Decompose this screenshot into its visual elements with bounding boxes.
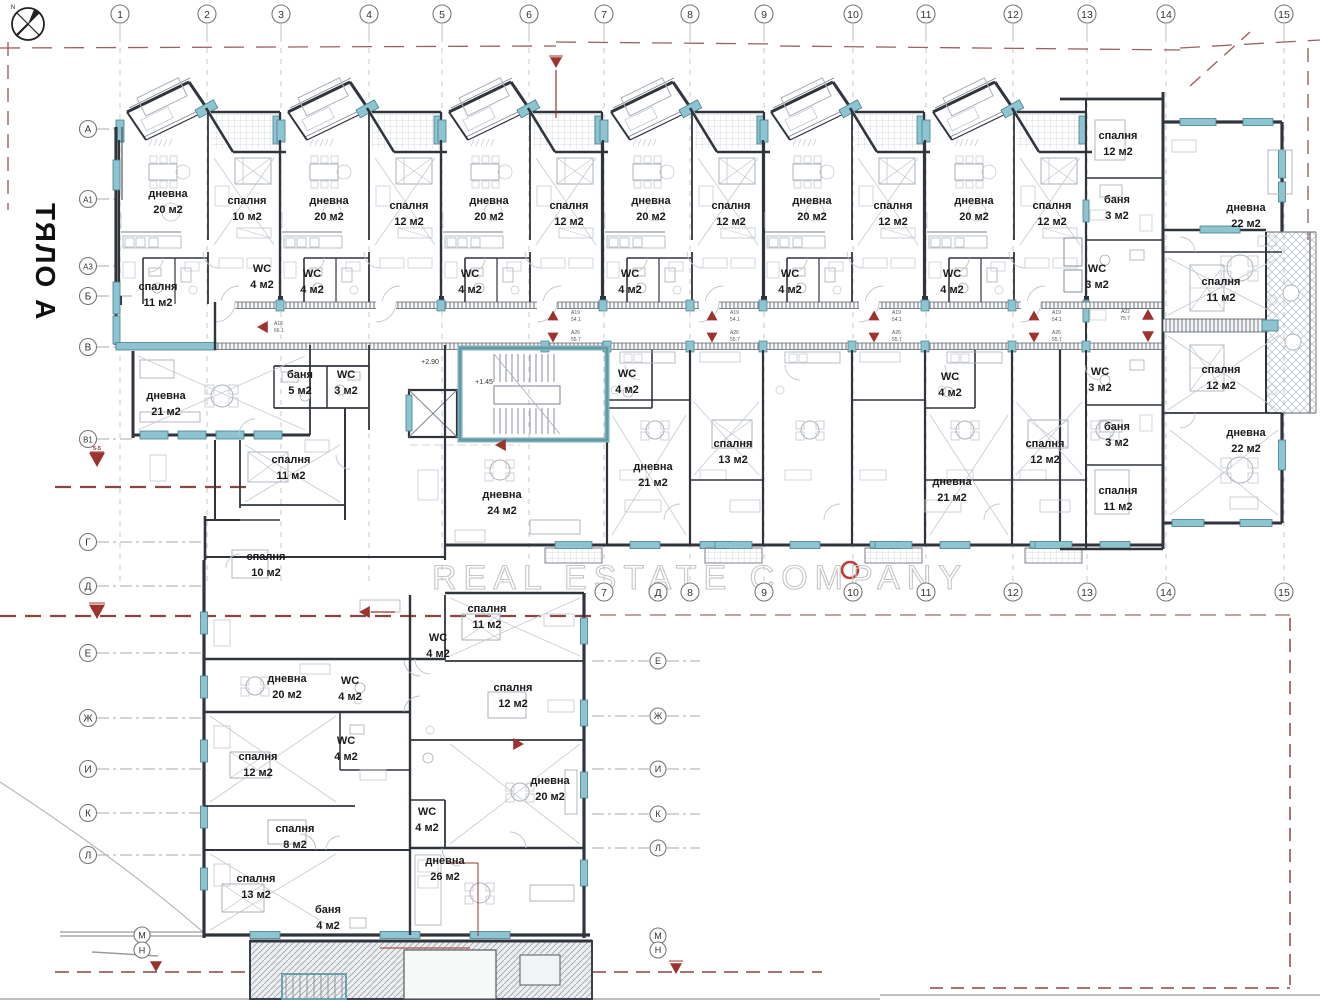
svg-text:N: N (11, 5, 15, 11)
svg-text:WC: WC (418, 806, 436, 818)
svg-text:5 м2: 5 м2 (288, 385, 311, 397)
svg-text:10 м2: 10 м2 (251, 567, 281, 579)
svg-text:Б: Б (85, 291, 92, 302)
svg-text:дневна: дневна (309, 195, 349, 207)
svg-text:11: 11 (921, 9, 932, 21)
svg-text:WC: WC (337, 735, 355, 747)
svg-text:10: 10 (847, 9, 859, 21)
svg-text:12 м2: 12 м2 (716, 216, 746, 228)
svg-text:дневна: дневна (530, 775, 570, 787)
svg-text:54.1: 54.1 (730, 317, 740, 323)
svg-text:13: 13 (1081, 9, 1093, 21)
svg-text:спалня: спалня (1202, 364, 1241, 376)
svg-text:20 м2: 20 м2 (272, 689, 302, 701)
svg-text:3: 3 (278, 9, 284, 21)
svg-text:А1: А1 (83, 195, 93, 204)
svg-text:спалня: спалня (1026, 438, 1065, 450)
svg-text:12: 12 (1007, 9, 1019, 21)
svg-text:4 м2: 4 м2 (426, 648, 449, 660)
svg-text:4 м2: 4 м2 (250, 279, 273, 291)
svg-text:14: 14 (1160, 9, 1172, 21)
svg-text:54.1: 54.1 (892, 317, 902, 323)
svg-text:дневна: дневна (425, 855, 465, 867)
svg-text:13: 13 (1081, 587, 1093, 599)
svg-text:11 м2: 11 м2 (144, 297, 173, 309)
svg-text:4 м2: 4 м2 (778, 284, 801, 296)
svg-text:баня: баня (1104, 194, 1130, 206)
svg-text:дневна: дневна (633, 461, 673, 473)
svg-text:4 м2: 4 м2 (458, 284, 481, 296)
svg-text:дневна: дневна (148, 188, 188, 200)
svg-text:спалня: спалня (239, 751, 278, 763)
svg-text:спалня: спалня (237, 873, 276, 885)
svg-text:А3: А3 (83, 262, 93, 271)
svg-text:8 м2: 8 м2 (283, 839, 306, 851)
svg-text:22 м2: 22 м2 (1231, 443, 1261, 455)
svg-text:дневна: дневна (482, 489, 522, 501)
svg-text:спалня: спалня (139, 281, 178, 293)
svg-text:4: 4 (366, 9, 372, 21)
svg-text:дневна: дневна (146, 390, 186, 402)
svg-text:Д: Д (654, 587, 661, 599)
svg-text:баня: баня (287, 369, 313, 381)
svg-text:К: К (655, 809, 661, 819)
svg-text:12 м2: 12 м2 (243, 767, 273, 779)
svg-text:М: М (654, 931, 662, 941)
svg-text:10: 10 (847, 587, 859, 599)
svg-text:спалня: спалня (468, 603, 507, 615)
svg-text:4 м2: 4 м2 (618, 284, 641, 296)
svg-text:20 м2: 20 м2 (636, 211, 666, 223)
svg-text:11 м2: 11 м2 (473, 619, 502, 631)
svg-text:A19: A19 (1052, 310, 1061, 316)
svg-text:9: 9 (761, 587, 767, 599)
svg-text:спалня: спалня (714, 438, 753, 450)
svg-text:спалня: спалня (228, 195, 267, 207)
svg-text:Г: Г (85, 537, 91, 548)
svg-text:дневна: дневна (631, 195, 671, 207)
svg-text:И: И (84, 764, 91, 775)
svg-text:6: 6 (526, 9, 532, 21)
svg-text:спалня: спалня (247, 551, 286, 563)
svg-text:7: 7 (601, 9, 607, 21)
svg-text:20 м2: 20 м2 (797, 211, 827, 223)
svg-text:4 м2: 4 м2 (338, 691, 361, 703)
svg-text:12 м2: 12 м2 (554, 216, 584, 228)
svg-text:А: А (85, 124, 92, 135)
svg-text:WC: WC (253, 263, 271, 275)
svg-text:спалня: спалня (1033, 200, 1072, 212)
svg-text:REAL ESTATE COMPANY: REAL ESTATE COMPANY (432, 559, 968, 597)
svg-text:К: К (85, 808, 91, 819)
svg-text:11: 11 (921, 587, 932, 599)
svg-text:20 м2: 20 м2 (535, 791, 565, 803)
svg-text:12 м2: 12 м2 (1103, 146, 1133, 158)
svg-text:15: 15 (1278, 9, 1290, 21)
svg-text:A19: A19 (571, 310, 580, 316)
svg-text:26 м2: 26 м2 (430, 871, 460, 883)
svg-text:WC: WC (461, 268, 479, 280)
svg-text:A19: A19 (892, 310, 901, 316)
svg-text:дневна: дневна (1226, 202, 1266, 214)
svg-text:1: 1 (117, 9, 123, 21)
svg-text:спалня: спалня (874, 200, 913, 212)
svg-text:5-5: 5-5 (93, 446, 101, 452)
svg-text:Е: Е (655, 656, 661, 666)
svg-text:И: И (655, 764, 661, 774)
svg-text:Ж: Ж (83, 713, 93, 724)
svg-text:спалня: спалня (550, 200, 589, 212)
svg-text:баня: баня (315, 904, 341, 916)
svg-text:В: В (85, 342, 92, 353)
svg-text:20 м2: 20 м2 (314, 211, 344, 223)
svg-text:11 м2: 11 м2 (1207, 292, 1236, 304)
svg-text:4 м2: 4 м2 (940, 284, 963, 296)
svg-text:9: 9 (761, 9, 767, 21)
svg-text:4 м2: 4 м2 (415, 822, 438, 834)
svg-text:13 м2: 13 м2 (718, 454, 748, 466)
svg-text:WC: WC (1088, 263, 1106, 275)
svg-text:4 м2: 4 м2 (316, 920, 339, 932)
svg-text:3 м2: 3 м2 (1105, 210, 1128, 222)
svg-text:спалня: спалня (276, 823, 315, 835)
svg-text:75.7: 75.7 (1120, 316, 1130, 322)
svg-text:спалня: спалня (1099, 485, 1138, 497)
svg-text:A22: A22 (1121, 309, 1130, 315)
svg-text:Е: Е (85, 648, 92, 659)
svg-text:4 м2: 4 м2 (300, 284, 323, 296)
svg-text:20 м2: 20 м2 (153, 204, 183, 216)
svg-text:+1.45: +1.45 (475, 379, 493, 386)
svg-text:15: 15 (1278, 587, 1290, 599)
svg-text:спалня: спалня (1202, 276, 1241, 288)
svg-text:A19: A19 (730, 310, 739, 316)
svg-text:10 м2: 10 м2 (232, 211, 262, 223)
svg-text:дневна: дневна (932, 476, 972, 488)
svg-text:13 м2: 13 м2 (241, 889, 271, 901)
svg-text:3 м2: 3 м2 (1085, 279, 1108, 291)
svg-text:баня: баня (1104, 421, 1130, 433)
svg-text:спалня: спалня (390, 200, 429, 212)
svg-text:A26: A26 (571, 330, 580, 336)
svg-text:WC: WC (303, 268, 321, 280)
svg-text:дневна: дневна (267, 673, 307, 685)
svg-text:4 м2: 4 м2 (334, 751, 357, 763)
svg-text:12 м2: 12 м2 (878, 216, 908, 228)
svg-text:8: 8 (687, 9, 693, 21)
svg-text:3 м2: 3 м2 (1105, 437, 1128, 449)
svg-text:14: 14 (1160, 587, 1172, 599)
svg-text:WC: WC (1091, 366, 1109, 378)
svg-text:В1: В1 (83, 435, 93, 444)
svg-text:спалня: спалня (272, 454, 311, 466)
svg-text:55.7: 55.7 (1052, 337, 1062, 343)
svg-text:М: М (138, 930, 146, 940)
svg-text:WC: WC (621, 268, 639, 280)
svg-text:дневна: дневна (469, 195, 509, 207)
svg-text:4 м2: 4 м2 (938, 387, 961, 399)
svg-text:спалня: спалня (494, 682, 533, 694)
svg-text:12 м2: 12 м2 (498, 698, 528, 710)
svg-text:A26: A26 (892, 330, 901, 336)
svg-text:Л: Л (85, 850, 92, 861)
svg-text:3 м2: 3 м2 (1088, 382, 1111, 394)
svg-text:8: 8 (687, 587, 693, 599)
svg-text:A26: A26 (1052, 330, 1061, 336)
svg-text:55.7: 55.7 (571, 337, 581, 343)
svg-text:+2.90: +2.90 (421, 359, 439, 366)
svg-text:66.1: 66.1 (274, 328, 284, 334)
svg-text:54.1: 54.1 (571, 317, 581, 323)
svg-text:12 м2: 12 м2 (1037, 216, 1067, 228)
svg-text:22 м2: 22 м2 (1231, 218, 1261, 230)
svg-text:Н: Н (139, 945, 146, 955)
svg-text:2: 2 (204, 9, 210, 21)
svg-text:дневна: дневна (954, 195, 994, 207)
svg-text:WC: WC (341, 675, 359, 687)
svg-text:WC: WC (618, 368, 636, 380)
svg-text:дневна: дневна (792, 195, 832, 207)
svg-text:11 м2: 11 м2 (277, 470, 306, 482)
svg-text:дневна: дневна (1226, 427, 1266, 439)
svg-text:21 м2: 21 м2 (638, 477, 668, 489)
svg-text:спалня: спалня (1099, 130, 1138, 142)
svg-text:Д: Д (85, 581, 92, 592)
svg-text:55.7: 55.7 (892, 337, 902, 343)
svg-text:12 м2: 12 м2 (394, 216, 424, 228)
svg-text:55.7: 55.7 (730, 337, 740, 343)
svg-text:7: 7 (601, 587, 607, 599)
svg-text:ТЯЛО А: ТЯЛО А (30, 203, 61, 321)
svg-text:12 м2: 12 м2 (1030, 454, 1060, 466)
svg-text:5: 5 (439, 9, 445, 21)
svg-text:54.1: 54.1 (1052, 317, 1062, 323)
svg-text:A16: A16 (274, 321, 283, 327)
svg-text:WC: WC (781, 268, 799, 280)
svg-text:11 м2: 11 м2 (1104, 501, 1133, 513)
svg-text:4 м2: 4 м2 (615, 384, 638, 396)
svg-text:спалня: спалня (712, 200, 751, 212)
svg-text:WC: WC (943, 268, 961, 280)
svg-text:3 м2: 3 м2 (334, 385, 357, 397)
svg-text:24 м2: 24 м2 (487, 505, 517, 517)
svg-text:12: 12 (1007, 587, 1019, 599)
svg-text:20 м2: 20 м2 (959, 211, 989, 223)
svg-text:Н: Н (655, 945, 662, 955)
svg-text:Л: Л (655, 843, 661, 853)
svg-text:WC: WC (429, 632, 447, 644)
svg-text:12 м2: 12 м2 (1206, 380, 1236, 392)
svg-text:21 м2: 21 м2 (937, 492, 967, 504)
svg-text:WC: WC (941, 371, 959, 383)
svg-text:A26: A26 (730, 330, 739, 336)
svg-text:WC: WC (337, 369, 355, 381)
svg-text:21 м2: 21 м2 (151, 406, 181, 418)
svg-text:Ж: Ж (654, 711, 663, 721)
svg-text:20 м2: 20 м2 (474, 211, 504, 223)
